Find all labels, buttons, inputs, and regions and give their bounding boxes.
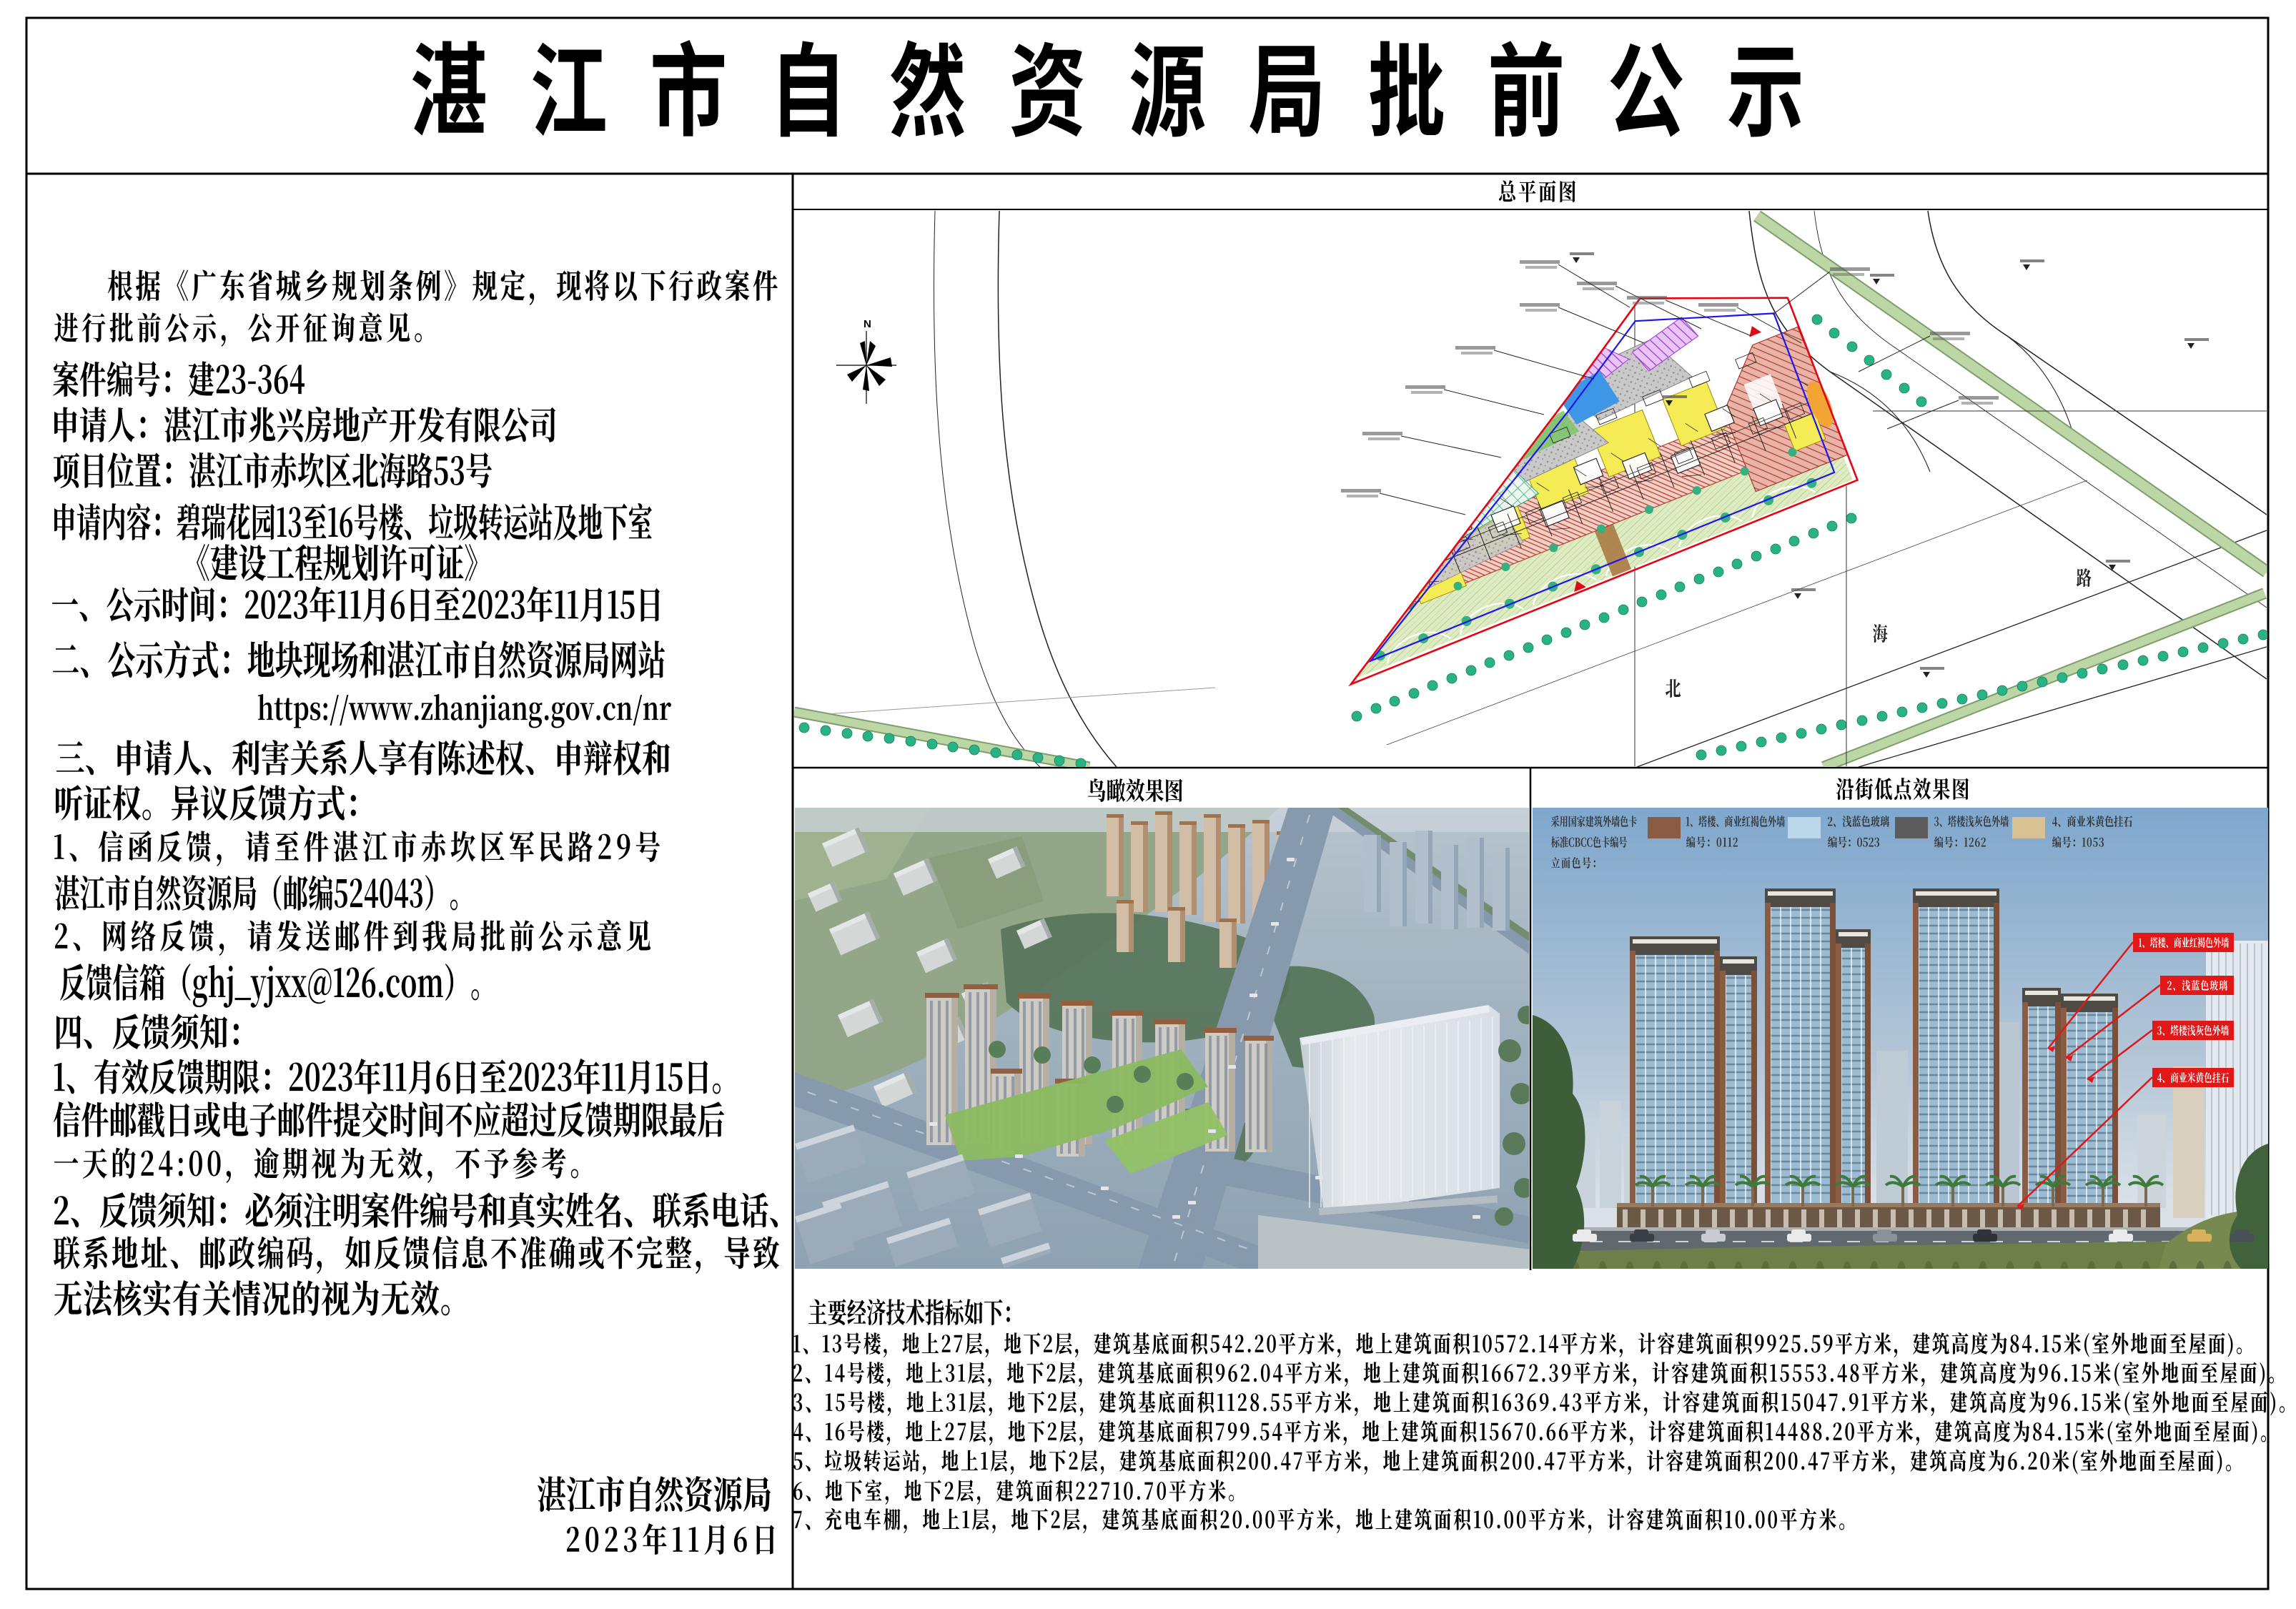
svg-text:N: N xyxy=(864,318,871,330)
